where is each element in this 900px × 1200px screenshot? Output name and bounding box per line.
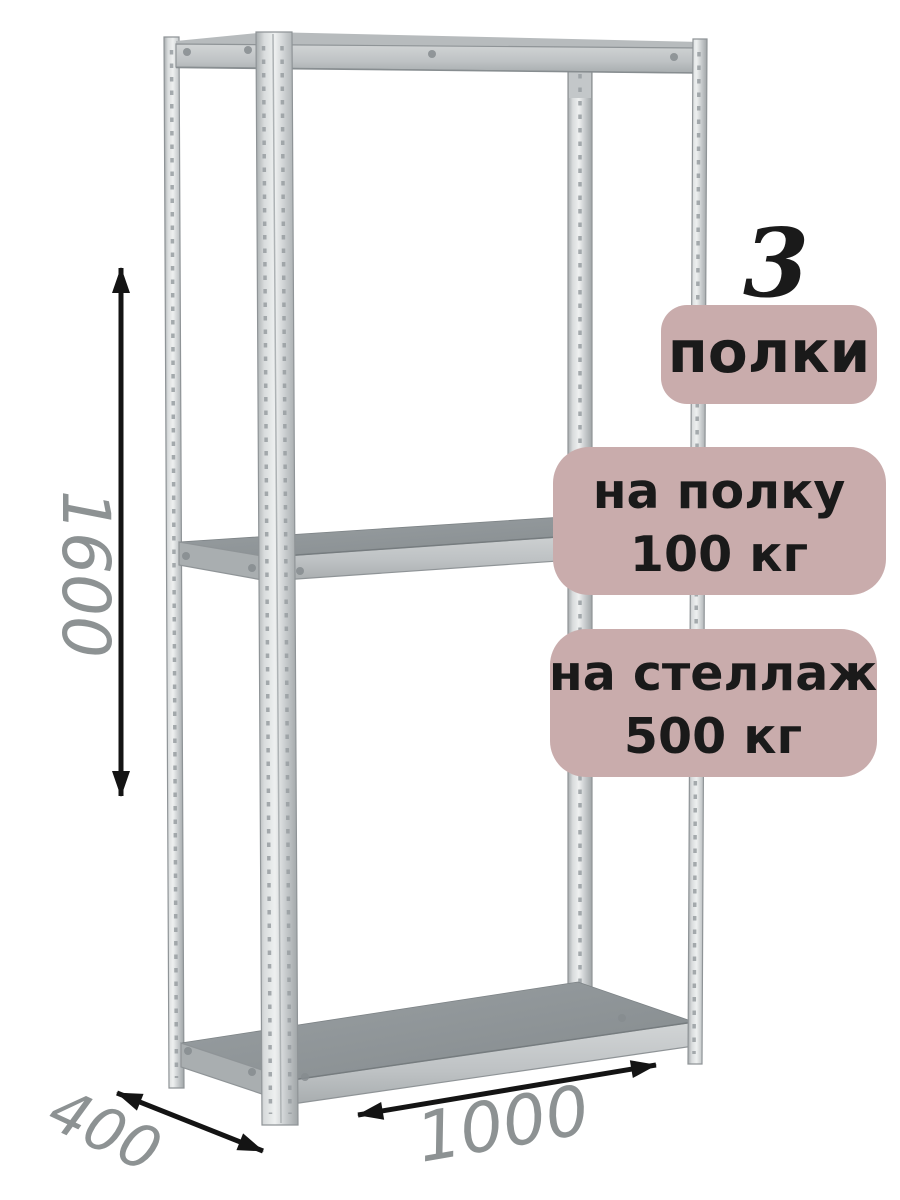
height-value: 1600 [47,490,124,658]
screw-head [428,50,436,58]
product-image: 1600 1000 400 3 полки на полку 100 кг на… [0,0,900,1200]
per-shelf-load-badge: на полку 100 кг [553,447,886,595]
screw-head [182,552,190,560]
screw-head [296,567,304,575]
shelf-count-label: полки [668,318,870,386]
screw-head [301,1073,309,1081]
screw-head [248,564,256,572]
screw-head [248,1068,256,1076]
per-shelf-load-label: на полку [593,463,846,520]
shelving-infographic: 1600 1000 400 3 полки на полку 100 кг на… [0,0,900,1200]
screw-head [244,46,252,54]
screw-head [183,48,191,56]
total-load-badge: на стеллаж 500 кг [549,629,878,777]
per-shelf-load-value: 100 кг [630,526,808,583]
screw-head [618,1014,626,1022]
shelf-count-number: 3 [743,208,809,319]
total-load-value: 500 кг [624,708,802,765]
total-load-label: на стеллаж [549,645,878,702]
screw-head [184,1047,192,1055]
screw-head [670,53,678,61]
